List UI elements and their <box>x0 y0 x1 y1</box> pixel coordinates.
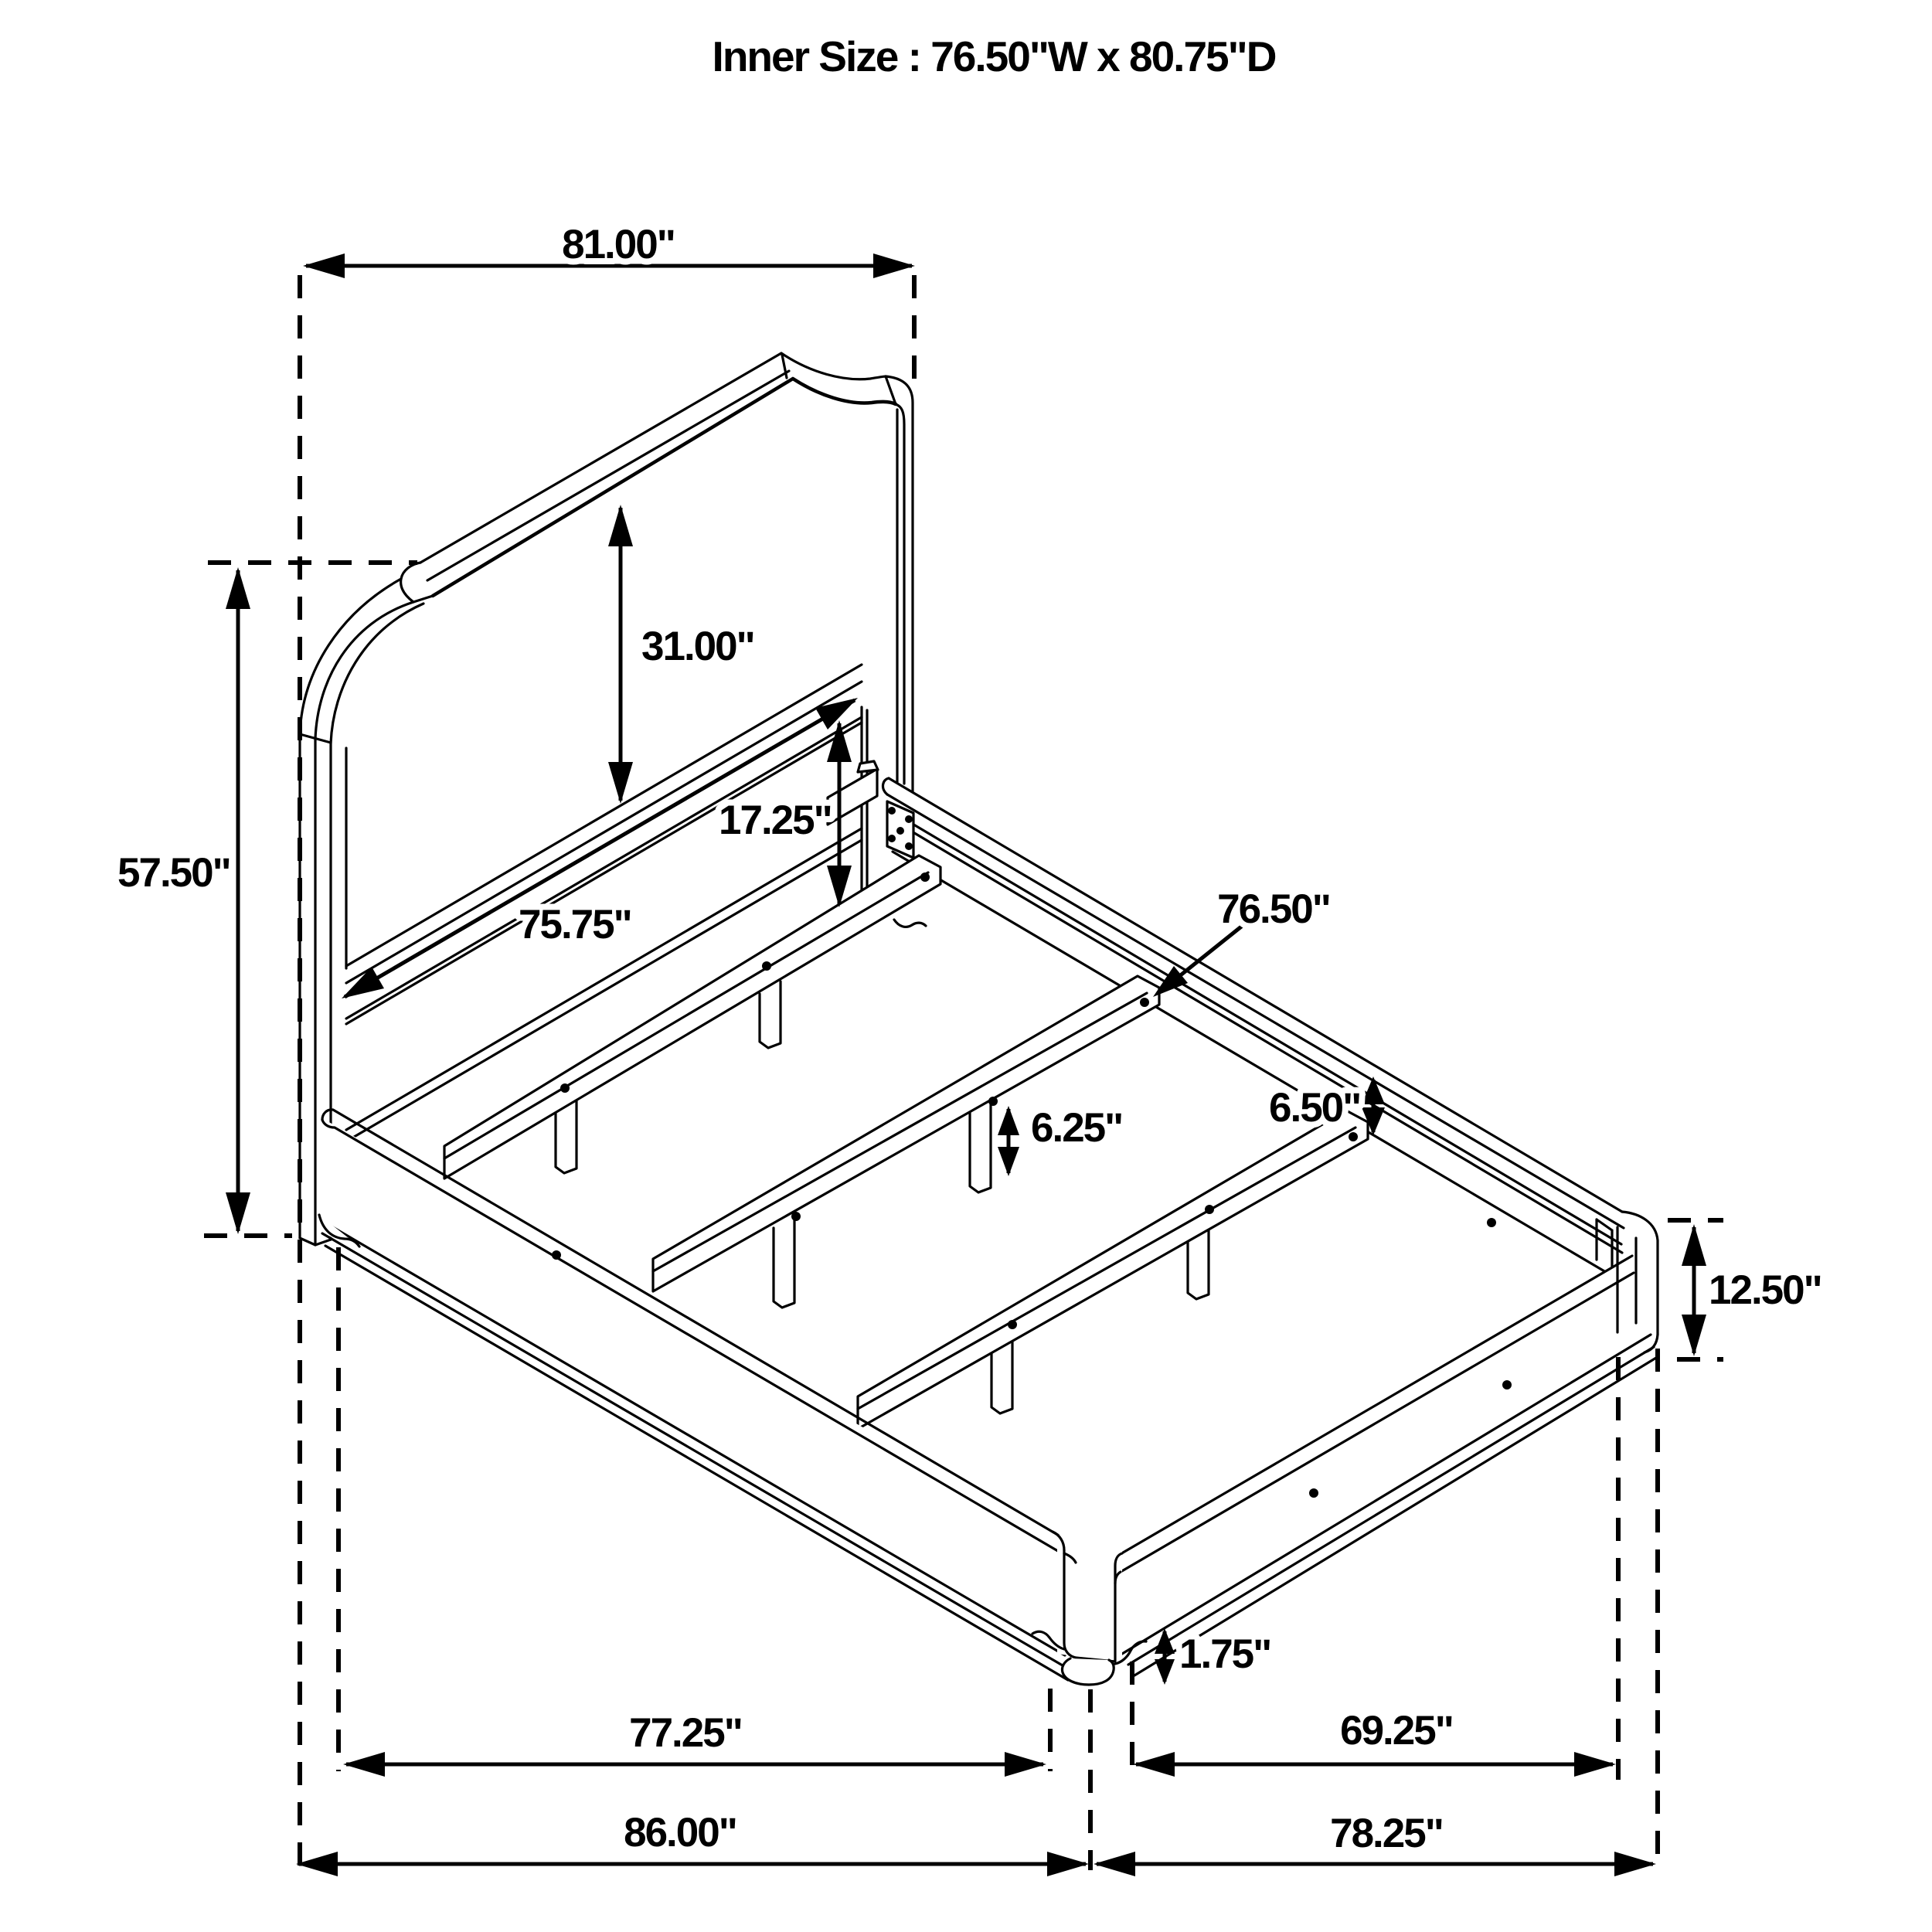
svg-text:57.50": 57.50" <box>117 850 230 896</box>
svg-text:86.00": 86.00" <box>624 1810 736 1855</box>
svg-text:81.00": 81.00" <box>562 222 675 267</box>
svg-text:6.25": 6.25" <box>1031 1105 1122 1151</box>
svg-text:77.25": 77.25" <box>629 1710 742 1756</box>
svg-text:31.00": 31.00" <box>641 624 754 669</box>
svg-text:78.25": 78.25" <box>1330 1811 1443 1856</box>
svg-text:Inner Size : 76.50"W x 80.75"D: Inner Size : 76.50"W x 80.75"D <box>713 32 1276 80</box>
svg-text:69.25": 69.25" <box>1340 1708 1453 1753</box>
svg-text:76.50": 76.50" <box>1217 886 1330 932</box>
svg-text:12.50": 12.50" <box>1709 1267 1821 1313</box>
svg-text:6.50": 6.50" <box>1269 1085 1360 1131</box>
svg-text:1.75": 1.75" <box>1179 1631 1270 1677</box>
svg-text:75.75": 75.75" <box>519 902 631 947</box>
svg-text:17.25": 17.25" <box>719 798 832 843</box>
